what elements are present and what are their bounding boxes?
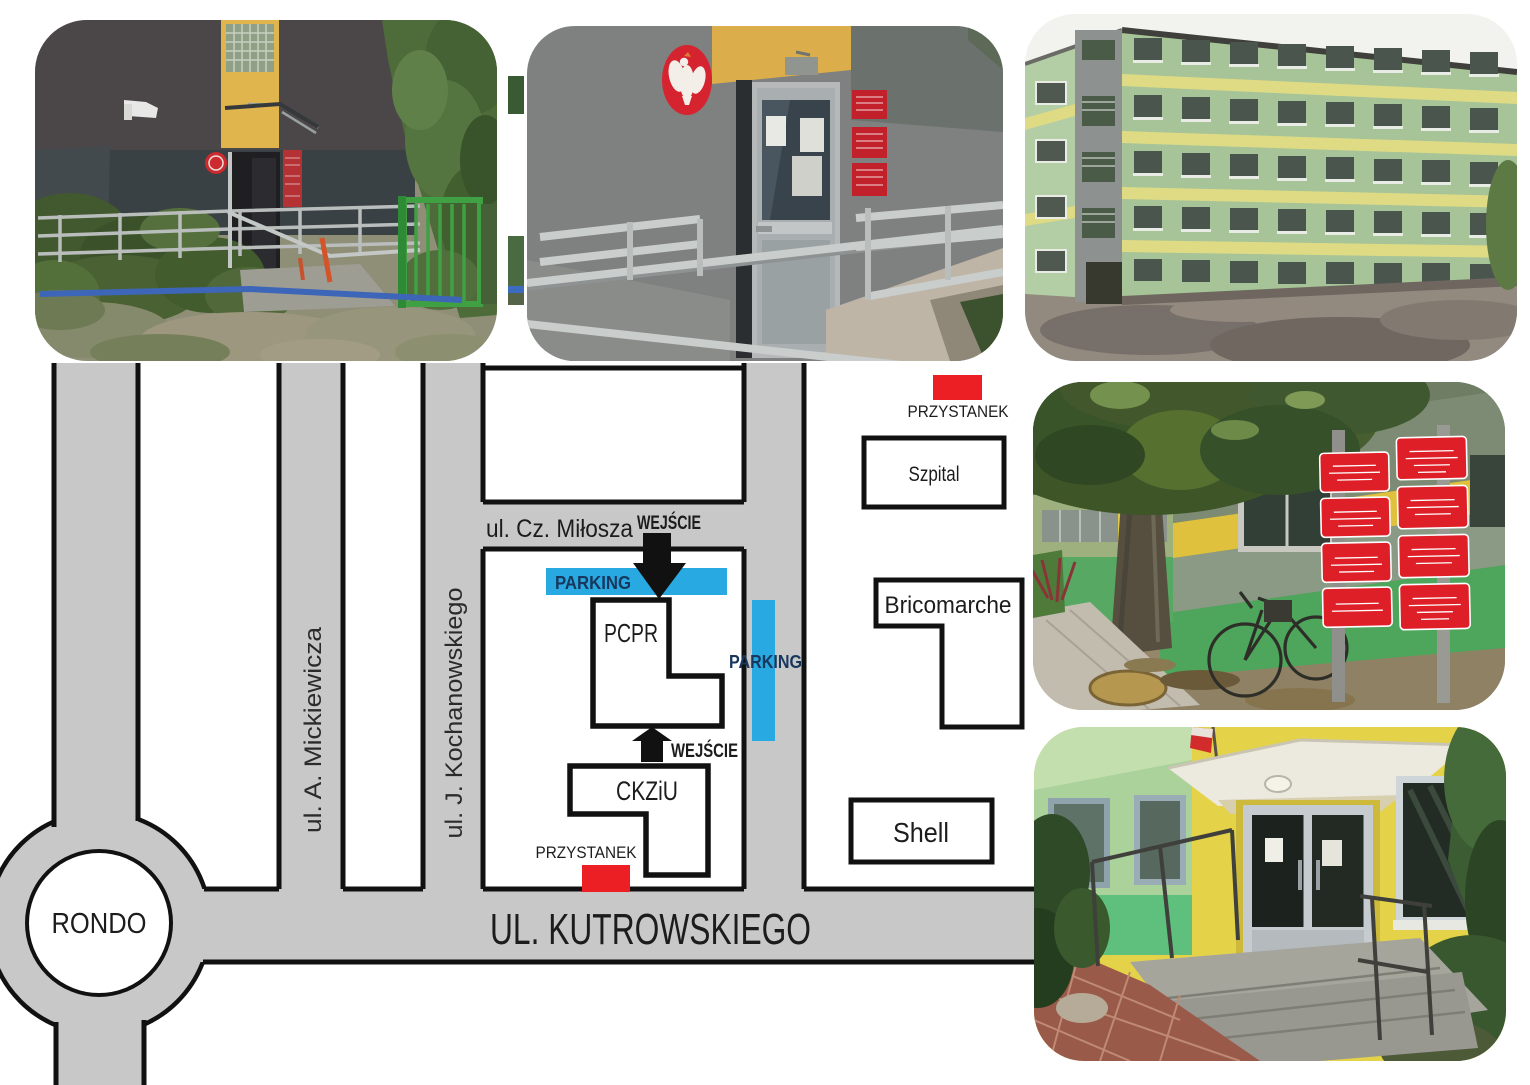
svg-text:PRZYSTANEK: PRZYSTANEK bbox=[908, 402, 1010, 421]
svg-text:WEJŚCIE: WEJŚCIE bbox=[637, 512, 701, 534]
svg-text:Szpital: Szpital bbox=[909, 463, 960, 486]
svg-text:ul. A. Mickiewicza: ul. A. Mickiewicza bbox=[300, 626, 327, 833]
svg-text:UL. KUTROWSKIEGO: UL. KUTROWSKIEGO bbox=[490, 905, 811, 954]
svg-text:WEJŚCIE: WEJŚCIE bbox=[671, 740, 738, 762]
svg-text:Shell: Shell bbox=[893, 817, 949, 848]
svg-text:PCPR: PCPR bbox=[604, 618, 658, 648]
svg-text:PARKING: PARKING bbox=[555, 573, 631, 593]
svg-text:RONDO: RONDO bbox=[52, 908, 147, 940]
svg-text:PARKING: PARKING bbox=[729, 652, 802, 672]
svg-text:ul. J. Kochanowskiego: ul. J. Kochanowskiego bbox=[441, 588, 468, 839]
svg-text:ul. Cz. Miłosza: ul. Cz. Miłosza bbox=[486, 515, 633, 543]
svg-text:Bricomarche: Bricomarche bbox=[885, 592, 1012, 619]
svg-text:PRZYSTANEK: PRZYSTANEK bbox=[536, 843, 638, 862]
svg-text:CKZiU: CKZiU bbox=[616, 776, 678, 806]
